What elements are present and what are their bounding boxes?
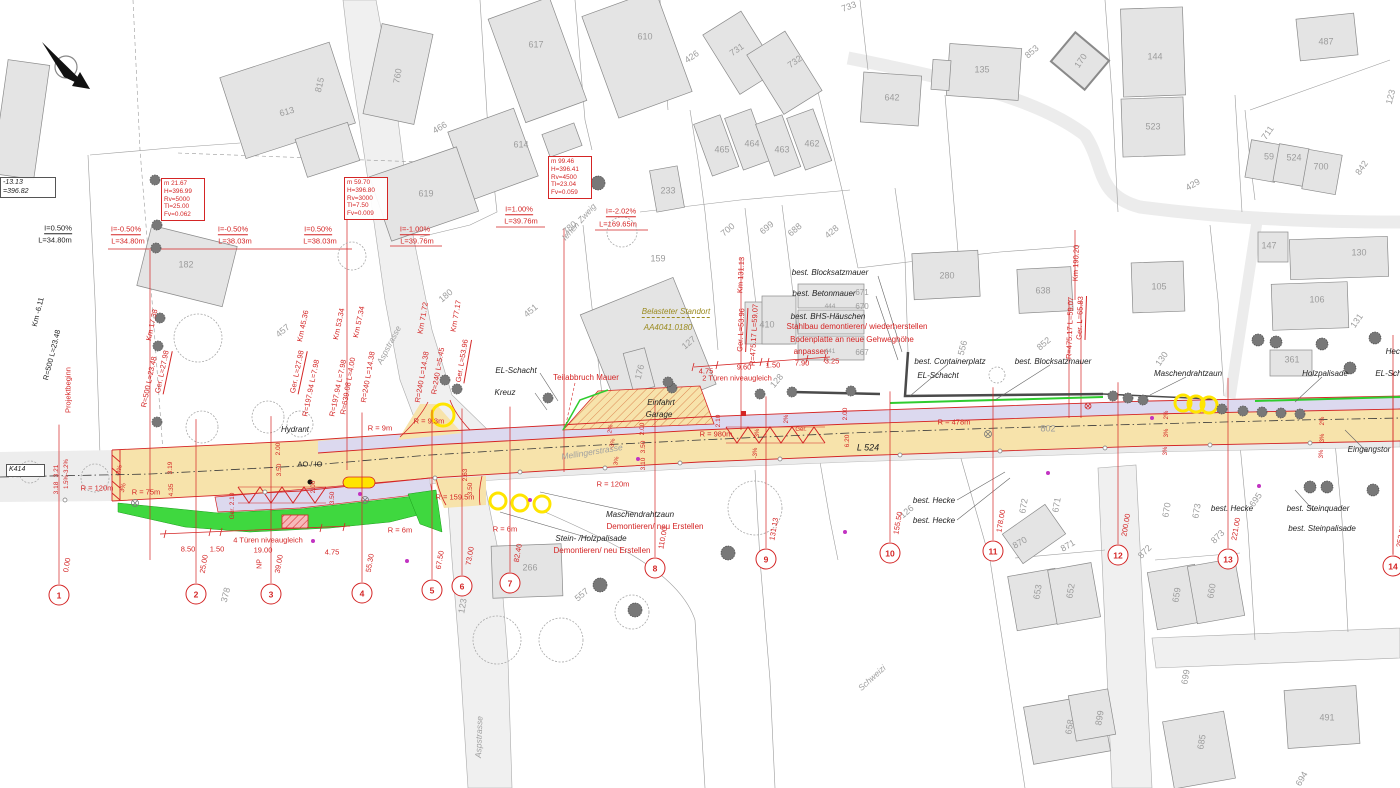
plan-drawing xyxy=(0,0,1400,788)
junction-mouth-south xyxy=(434,476,486,508)
crossing-marker xyxy=(741,411,746,416)
red-hatched-structure xyxy=(282,515,308,528)
ao-io-point xyxy=(308,480,313,485)
bus-stop-marking xyxy=(343,477,375,488)
site-plan-canvas: I=-0.50%L=34.80mI=-0.50%L=38.03mI=0.50%L… xyxy=(0,0,1400,788)
